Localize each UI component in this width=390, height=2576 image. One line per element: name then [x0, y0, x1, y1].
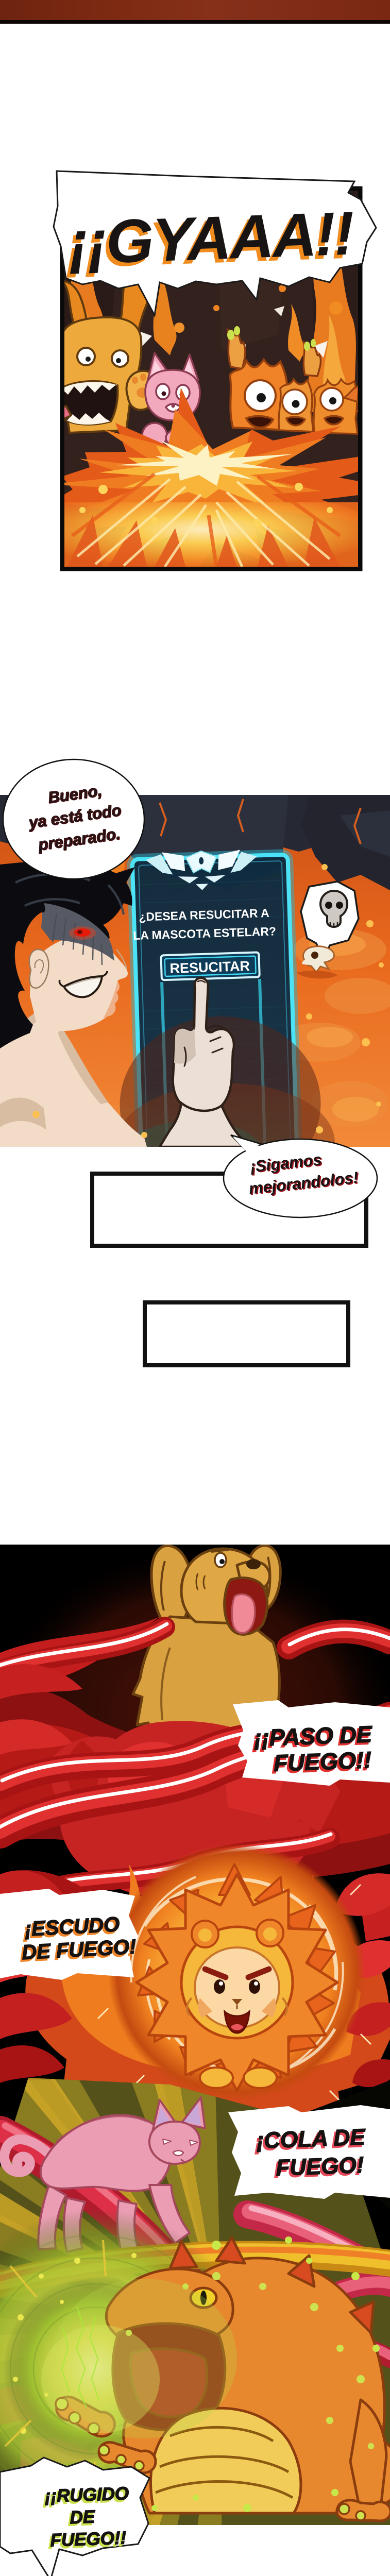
- svg-text:¡¡GYAAA!!: ¡¡GYAAA!!: [67, 199, 354, 277]
- svg-text:¡COLA DE: ¡COLA DE: [256, 2125, 366, 2154]
- svg-text:FUEGO!!: FUEGO!!: [273, 1747, 372, 1776]
- svg-text:FUEGO!!: FUEGO!!: [50, 2528, 127, 2550]
- svg-text:FUEGO!: FUEGO!: [276, 2153, 365, 2181]
- svg-text:DE: DE: [70, 2506, 96, 2528]
- svg-text:¡¡RUGIDO: ¡¡RUGIDO: [44, 2483, 129, 2506]
- svg-text:¡¡PASO DE: ¡¡PASO DE: [253, 1721, 374, 1751]
- svg-text:RESUCITAR: RESUCITAR: [169, 958, 250, 976]
